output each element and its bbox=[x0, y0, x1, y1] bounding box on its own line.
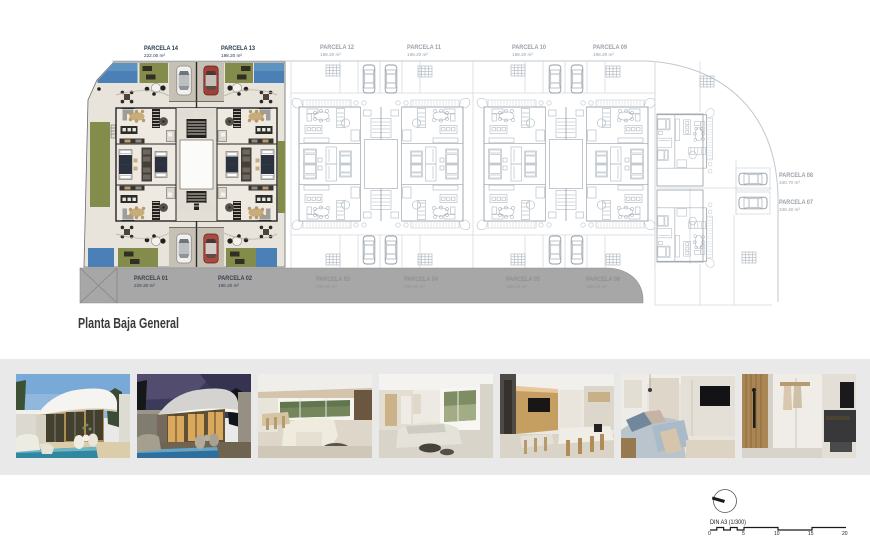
svg-text:348.40 m²: 348.40 m² bbox=[779, 207, 800, 213]
svg-text:198.20 m²: 198.20 m² bbox=[506, 284, 527, 290]
svg-text:229.20 m²: 229.20 m² bbox=[134, 283, 155, 289]
svg-text:198.20 m²: 198.20 m² bbox=[512, 52, 533, 58]
svg-text:198.20 m²: 198.20 m² bbox=[320, 52, 341, 58]
svg-text:PARCELA 01: PARCELA 01 bbox=[134, 275, 168, 282]
svg-text:198.20 m²: 198.20 m² bbox=[218, 283, 239, 289]
svg-text:222.00 m²: 222.00 m² bbox=[144, 53, 165, 59]
svg-text:PARCELA 11: PARCELA 11 bbox=[407, 44, 441, 51]
svg-text:198.20 m²: 198.20 m² bbox=[586, 284, 607, 290]
svg-text:10: 10 bbox=[774, 531, 780, 537]
svg-text:PARCELA 04: PARCELA 04 bbox=[404, 276, 438, 283]
svg-text:PARCELA 03: PARCELA 03 bbox=[316, 276, 350, 283]
svg-text:PARCELA 10: PARCELA 10 bbox=[512, 44, 546, 51]
svg-text:198.20 m²: 198.20 m² bbox=[316, 284, 337, 290]
svg-text:PARCELA 06: PARCELA 06 bbox=[586, 276, 620, 283]
svg-text:PARCELA 12: PARCELA 12 bbox=[320, 44, 354, 51]
svg-text:198.20 m²: 198.20 m² bbox=[221, 53, 242, 59]
svg-text:Planta Baja General: Planta Baja General bbox=[78, 316, 179, 332]
svg-text:15: 15 bbox=[808, 531, 814, 537]
svg-text:PARCELA 14: PARCELA 14 bbox=[144, 45, 178, 52]
svg-text:PARCELA 05: PARCELA 05 bbox=[506, 276, 540, 283]
svg-text:PARCELA 13: PARCELA 13 bbox=[221, 45, 255, 52]
svg-text:PARCELA 08: PARCELA 08 bbox=[779, 172, 813, 179]
svg-text:PARCELA 09: PARCELA 09 bbox=[593, 44, 627, 51]
svg-text:5: 5 bbox=[742, 531, 745, 537]
svg-text:DIN A3 (1/300): DIN A3 (1/300) bbox=[710, 519, 746, 526]
svg-text:198.20 m²: 198.20 m² bbox=[407, 52, 428, 58]
svg-text:340.70 m²: 340.70 m² bbox=[779, 180, 800, 186]
svg-text:20: 20 bbox=[842, 531, 848, 537]
svg-text:PARCELA 02: PARCELA 02 bbox=[218, 275, 252, 282]
svg-text:198.20 m²: 198.20 m² bbox=[404, 284, 425, 290]
svg-text:0: 0 bbox=[708, 531, 711, 537]
svg-text:PARCELA 07: PARCELA 07 bbox=[779, 199, 813, 206]
svg-text:198.20 m²: 198.20 m² bbox=[593, 52, 614, 58]
